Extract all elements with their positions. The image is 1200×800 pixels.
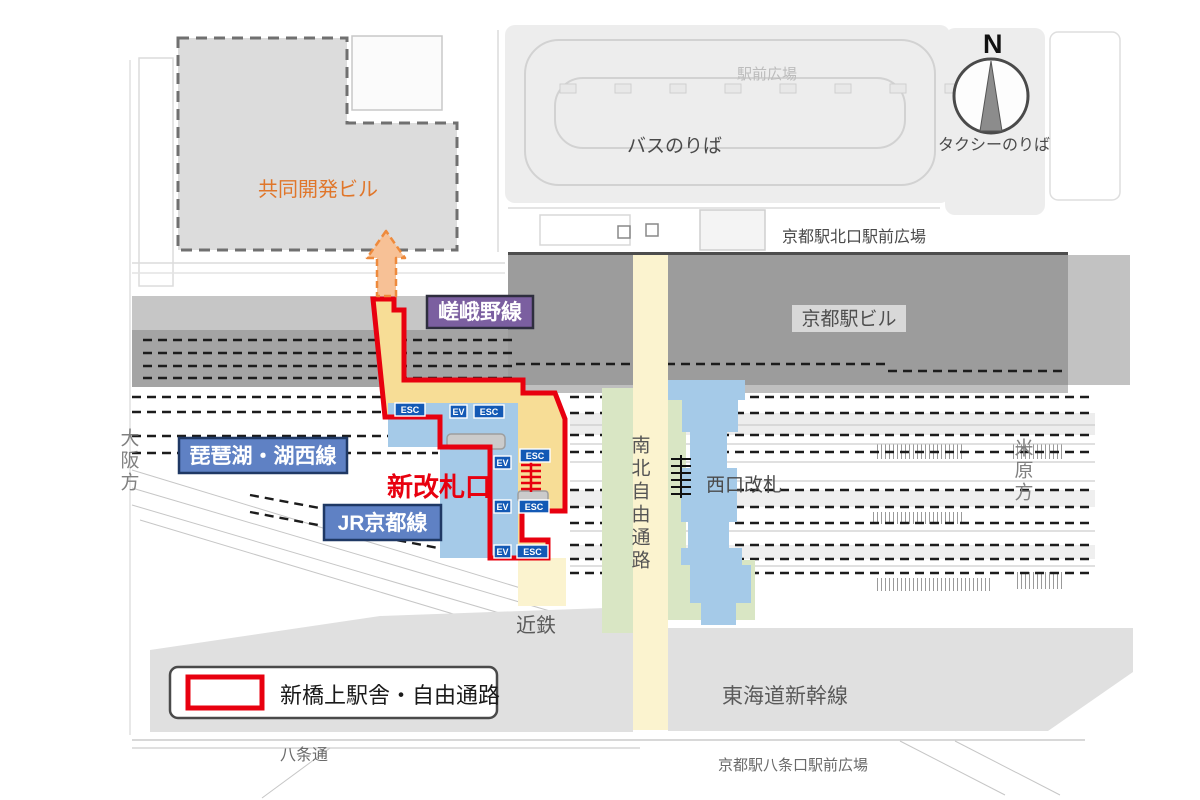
bus-stall: [670, 84, 686, 93]
kintetsu-label: 近鉄: [516, 614, 556, 637]
platform-hatch: [1015, 572, 1062, 589]
north-exit-plaza-label: 京都駅北口駅前広場: [782, 228, 926, 246]
corridor-stub-south: [518, 558, 566, 606]
shinkansen-label: 東海道新幹線: [722, 685, 848, 708]
new-ticket-gate-label: 新改札口: [387, 472, 491, 502]
bus-stall: [890, 84, 906, 93]
ev-badge-label: EV: [452, 407, 464, 417]
hachijo-exit-plaza-label: 京都駅八条口駅前広場: [718, 757, 868, 774]
bus-plaza-area: [505, 25, 1120, 215]
station-building-east: [1068, 255, 1130, 385]
legend: 新橋上駅舎・自由通路: [170, 667, 500, 718]
legend-swatch-new-structure: [188, 677, 262, 708]
corridor-label: 南北自由通路: [629, 435, 651, 573]
esc-badge-label: ESC: [480, 407, 499, 417]
bus-plaza-bg: [505, 25, 950, 203]
ev-badge-label: EV: [496, 458, 508, 468]
bus-stall: [835, 84, 851, 93]
esc-badge-label: ESC: [401, 405, 420, 415]
plaza-faint-label: 駅前広場: [737, 66, 797, 83]
station-map: 共同開発ビル バスのりば 駅前広場 タクシーのりば N 京都駅北口駅前広場 京都…: [0, 0, 1200, 800]
station-south-band: [508, 385, 1068, 393]
platform-hatch: [875, 578, 990, 591]
bus-boarding-label: バスのりば: [627, 135, 722, 157]
osaka-direction-label: 大阪方: [118, 428, 140, 494]
legend-label: 新橋上駅舎・自由通路: [280, 683, 500, 708]
station-north-wall: [508, 252, 1068, 255]
esc-badge-label: ESC: [525, 502, 544, 512]
biwako-kosei-line-label: 琵琶湖・湖西線: [190, 444, 337, 468]
station-map-page: 共同開発ビル バスのりば 駅前広場 タクシーのりば N 京都駅北口駅前広場 京都…: [0, 0, 1200, 800]
shinkansen-band: [668, 628, 1133, 731]
kyodo-building-label: 共同開発ビル: [258, 178, 378, 201]
compass-n-label: N: [983, 29, 1003, 59]
bus-stall: [615, 84, 631, 93]
bus-stall: [725, 84, 741, 93]
bus-stall: [560, 84, 576, 93]
existing-building: [352, 36, 442, 110]
plaza-structure-outline: [700, 210, 765, 250]
hachijo-street-label: 八条通: [280, 746, 328, 764]
west-gate-label: 西口改札: [706, 474, 782, 496]
station-building-body: [508, 255, 1068, 385]
esc-badge-label: ESC: [526, 451, 545, 461]
sagano-line-label: 嵯峨野線: [438, 300, 522, 324]
ev-badge-label: EV: [496, 547, 508, 557]
jr-kyoto-line-label: JR京都線: [338, 511, 428, 535]
station-building-label: 京都駅ビル: [801, 308, 896, 330]
ev-badge-label: EV: [496, 502, 508, 512]
bus-stall: [780, 84, 796, 93]
taxi-boarding-label: タクシーのりば: [938, 136, 1050, 154]
maibara-direction-label: 米原方: [1012, 438, 1034, 504]
esc-badge-label: ESC: [523, 547, 542, 557]
